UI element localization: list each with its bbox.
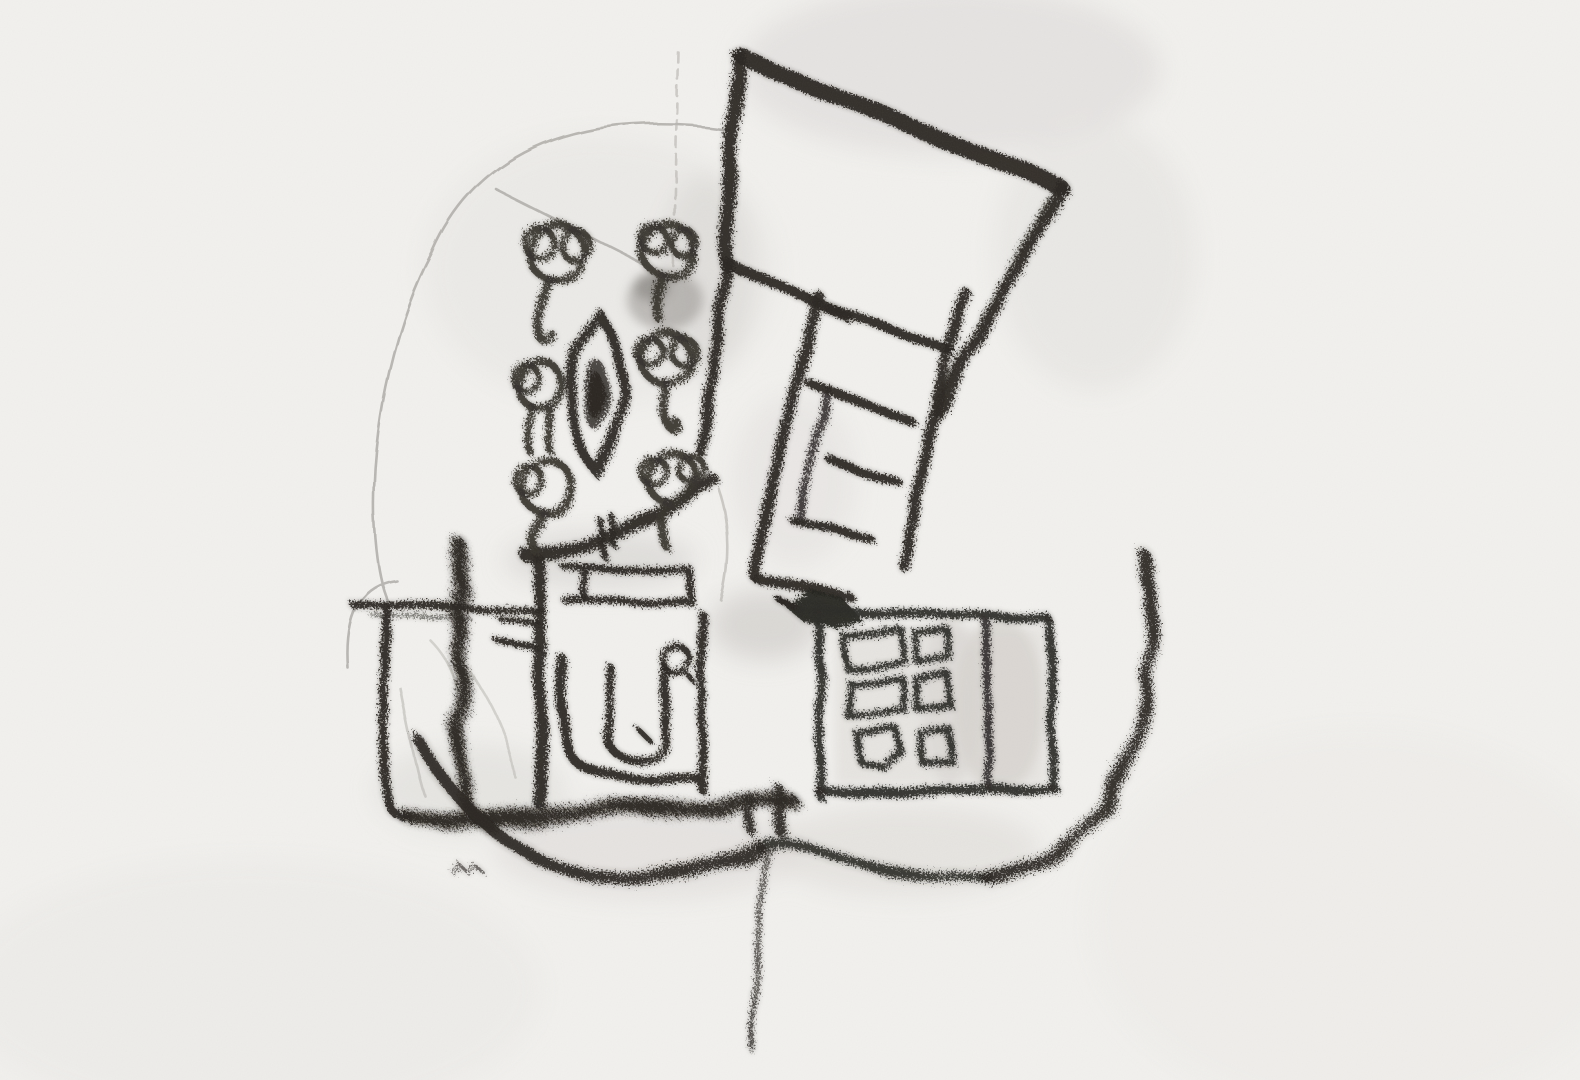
sketch-image: Hand-drawn charcoal sketch — architectur… bbox=[0, 0, 1580, 1080]
charcoal-sketch: Hand-drawn charcoal sketch — architectur… bbox=[0, 0, 1580, 1080]
paper-grain-overlay bbox=[0, 0, 1580, 1080]
